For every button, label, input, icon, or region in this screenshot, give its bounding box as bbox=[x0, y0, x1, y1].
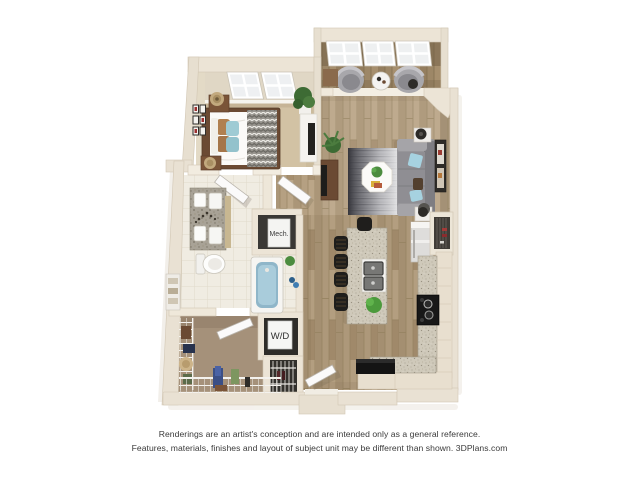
svg-text:W/D: W/D bbox=[271, 331, 290, 342]
svg-text:Mech.: Mech. bbox=[269, 231, 288, 238]
